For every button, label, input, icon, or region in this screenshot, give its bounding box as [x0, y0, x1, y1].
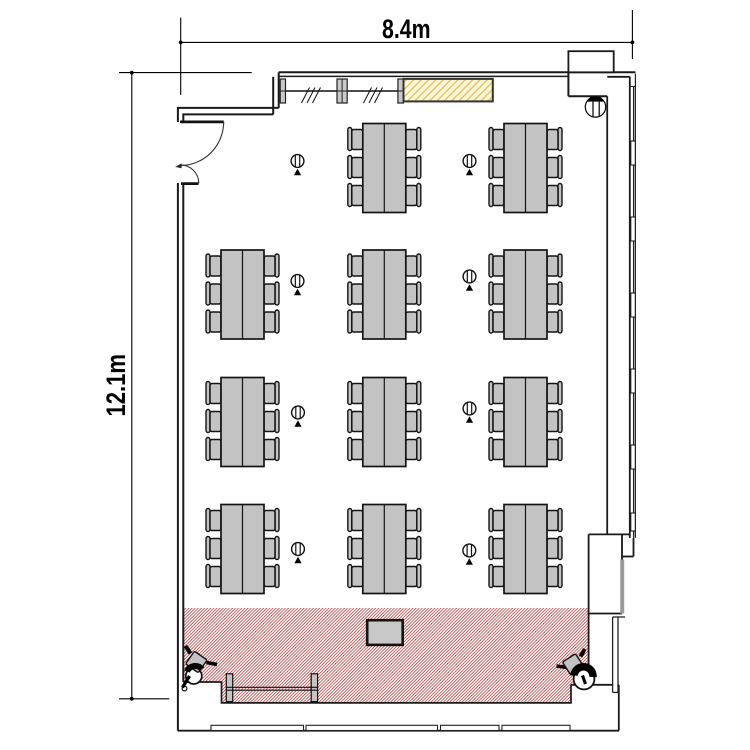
svg-text:12.1m: 12.1m — [101, 354, 131, 417]
svg-text:8.4m: 8.4m — [382, 14, 431, 44]
